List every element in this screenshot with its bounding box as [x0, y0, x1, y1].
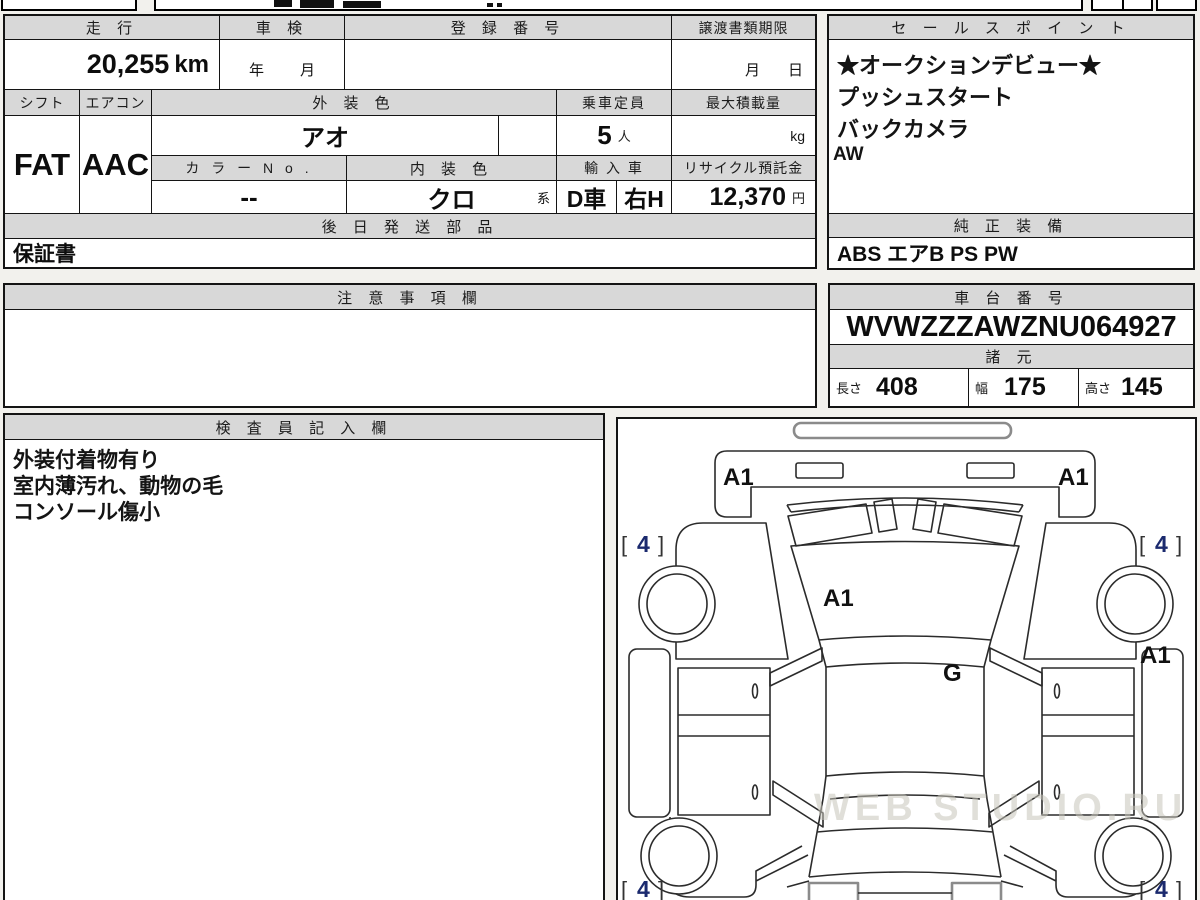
sales-point-item: AW — [833, 144, 864, 166]
shift-value: FAT — [5, 116, 80, 214]
handle-position-value: 右H — [617, 181, 672, 214]
color-no-header: カ ラ ー N o . — [152, 156, 347, 181]
inspector-box: 検 査 員 記 入 欄 外装付着物有り 室内薄汚れ、動物の毛 コンソール傷小 — [3, 413, 605, 900]
capacity-unit: 人 — [618, 126, 631, 145]
spec-height-label: 高さ — [1085, 378, 1111, 397]
bracket-open: [ — [621, 532, 627, 557]
sales-points-header-label: セ ー ル ス ポ イ ン ト — [891, 17, 1130, 38]
later-parts-header-label: 後 日 発 送 部 品 — [322, 216, 499, 237]
wheels — [639, 566, 1173, 894]
exterior-color-header: 外 装 色 — [152, 90, 557, 116]
handle-position-text: 右H — [624, 181, 664, 214]
cautions-header-label: 注 意 事 項 欄 — [337, 287, 483, 308]
damage-mark-windshield: G — [943, 660, 962, 687]
tire-score-value: 4 — [1155, 876, 1168, 900]
chassis-specs-block: 車 台 番 号 WVWZZZAWZNU064927 諸 元 長さ 408 幅 1… — [828, 283, 1195, 408]
cautions-header: 注 意 事 項 欄 — [5, 285, 815, 310]
damage-mark-rear-right: A1 — [1140, 642, 1171, 669]
sales-point-item: ★オークションデビュー★ — [837, 48, 1101, 80]
transfer-deadline-header: 譲渡書類期限 — [672, 16, 815, 40]
tire-score-value: 4 — [637, 876, 650, 900]
door-handle — [753, 684, 758, 698]
import-header-label: 輸 入 車 — [584, 158, 644, 178]
transfer-month-placeholder: 月 — [745, 59, 760, 80]
shift-value-text: FAT — [14, 147, 70, 183]
color-no-text: -- — [240, 182, 257, 213]
truncated-cell — [154, 0, 1083, 11]
doors-left — [678, 668, 770, 815]
shaken-month-placeholder: 月 — [300, 59, 315, 80]
sales-points-block: セ ー ル ス ポ イ ン ト ★オークションデビュー★ プッシュスタート バッ… — [827, 14, 1195, 270]
chassis-header: 車 台 番 号 — [830, 285, 1193, 310]
transfer-day-placeholder: 日 — [788, 59, 803, 80]
tire-score-rear-left: [ 4 ] — [621, 876, 664, 900]
later-parts-header: 後 日 発 送 部 品 — [5, 214, 815, 239]
equipment-header: 純 正 装 備 — [829, 214, 1193, 238]
capacity-value: 5人 — [557, 116, 672, 156]
max-load-header: 最大積載量 — [672, 90, 815, 116]
chassis-header-label: 車 台 番 号 — [954, 287, 1069, 308]
damage-mark-hood: A1 — [823, 585, 854, 612]
mileage-header-label: 走 行 — [86, 17, 138, 38]
wheel-front-left — [639, 566, 715, 642]
vehicle-info-table: 走 行 車 検 登 録 番 号 譲渡書類期限 20,255km 年 月 月 日 … — [3, 14, 817, 269]
truncated-cell — [1, 0, 137, 11]
capacity-header-label: 乗車定員 — [582, 93, 646, 113]
bracket-close: ] — [658, 877, 664, 900]
import-type-value: D車 — [557, 181, 617, 214]
interior-color-value: クロ 系 — [347, 181, 557, 214]
bracket-open: [ — [621, 877, 627, 900]
inspector-header: 検 査 員 記 入 欄 — [5, 415, 603, 440]
spec-width-value: 175 — [1004, 373, 1046, 402]
equipment-text: ABS エアB PS PW — [837, 238, 1018, 268]
grille-right — [913, 499, 936, 532]
bracket-close: ] — [658, 532, 664, 557]
aircon-header: エアコン — [80, 90, 152, 116]
spec-length-value: 408 — [876, 373, 918, 402]
door-handle — [1055, 684, 1060, 698]
shaken-value: 年 月 — [220, 40, 345, 90]
later-parts-text: 保証書 — [13, 239, 76, 267]
later-parts-value: 保証書 — [5, 239, 815, 267]
capacity-header: 乗車定員 — [557, 90, 672, 116]
recycle-header-label: リサイクル預託金 — [684, 158, 803, 178]
door-molding-lines — [678, 715, 1134, 736]
grille-left — [874, 499, 897, 532]
spec-width: 幅 175 — [969, 369, 1079, 406]
interior-color-suffix: 系 — [537, 188, 550, 207]
door-handle — [753, 785, 758, 799]
spec-height: 高さ 145 — [1079, 369, 1193, 406]
mileage-header: 走 行 — [5, 16, 220, 40]
import-header: 輸 入 車 — [557, 156, 672, 181]
import-type-text: D車 — [567, 181, 607, 214]
transfer-header-label: 譲渡書類期限 — [699, 18, 789, 38]
recycle-header: リサイクル預託金 — [672, 156, 815, 181]
damage-mark-bumper-left: A1 — [723, 464, 754, 491]
tire-score-front-right: [ 4 ] — [1139, 531, 1182, 557]
registration-value — [345, 40, 672, 90]
inspector-comment: コンソール傷小 — [13, 496, 160, 526]
shift-header-label: シフト — [20, 93, 65, 113]
mileage-value: 20,255km — [5, 40, 220, 90]
color-no-value: -- — [152, 181, 347, 214]
specs-header-label: 諸 元 — [985, 346, 1037, 367]
vehicle-diagram-box: A1 A1 A1 G A1 [ 4 ] [ 4 ] [ 4 ] [ 4 ] WE… — [616, 417, 1197, 900]
shaken-year-placeholder: 年 — [249, 59, 264, 80]
rear-bumper-left — [809, 883, 858, 900]
tire-score-front-left: [ 4 ] — [621, 531, 664, 557]
sales-points-header: セ ー ル ス ポ イ ン ト — [829, 16, 1193, 40]
cautions-body — [5, 310, 815, 406]
sales-point-item: プッシュスタート — [837, 80, 1013, 112]
shaken-header-label: 車 検 — [256, 17, 308, 38]
cautions-box: 注 意 事 項 欄 — [3, 283, 817, 408]
equipment-value: ABS エアB PS PW — [829, 238, 1193, 268]
truncated-cell — [1156, 0, 1197, 11]
interior-color-header: 内 装 色 — [347, 156, 557, 181]
a-pillar-right — [990, 648, 1042, 686]
front-edge-strip — [794, 423, 1011, 438]
mileage-unit: km — [174, 51, 209, 79]
bracket-open: [ — [1139, 532, 1145, 557]
aircon-header-label: エアコン — [86, 93, 146, 113]
a-pillar-left — [770, 648, 822, 686]
wheel-front-right — [1097, 566, 1173, 642]
headlight-washer-right — [967, 463, 1014, 478]
rear-bumper-right — [952, 883, 1001, 900]
shift-header: シフト — [5, 90, 80, 116]
max-load-unit: kg — [790, 128, 805, 144]
aircon-value-text: AAC — [82, 147, 149, 183]
capacity-number: 5 — [597, 120, 611, 151]
headlight-washer-left — [796, 463, 843, 478]
bracket-open: [ — [1139, 877, 1145, 900]
shaken-header: 車 検 — [220, 16, 345, 40]
chassis-value: WVWZZZAWZNU064927 — [830, 310, 1193, 345]
exterior-color-text: アオ — [301, 118, 349, 153]
spec-width-label: 幅 — [975, 378, 988, 397]
tire-score-value: 4 — [1155, 531, 1168, 557]
bracket-close: ] — [1176, 877, 1182, 900]
tire-score-value: 4 — [637, 531, 650, 557]
equipment-header-label: 純 正 装 備 — [954, 215, 1069, 236]
max-load-header-label: 最大積載量 — [706, 93, 781, 113]
recycle-fee-number: 12,370 — [710, 183, 786, 212]
registration-header-label: 登 録 番 号 — [451, 17, 566, 38]
windshield — [819, 640, 991, 667]
interior-color-header-label: 内 装 色 — [410, 158, 493, 179]
specs-header: 諸 元 — [830, 345, 1193, 369]
recycle-fee-value: 12,370円 — [672, 181, 815, 214]
transfer-deadline-value: 月 日 — [672, 40, 815, 90]
interior-color-text: クロ — [428, 181, 476, 214]
bracket-close: ] — [1176, 532, 1182, 557]
inspector-body: 外装付着物有り 室内薄汚れ、動物の毛 コンソール傷小 — [5, 440, 603, 898]
color-no-header-label: カ ラ ー N o . — [185, 158, 312, 178]
watermark: WEB STUDIO.RU — [814, 787, 1187, 830]
spec-height-value: 145 — [1121, 373, 1163, 402]
recycle-fee-unit: 円 — [792, 188, 805, 207]
registration-header: 登 録 番 号 — [345, 16, 672, 40]
wheel-rear-left — [641, 818, 717, 894]
mileage-number: 20,255 — [87, 49, 170, 80]
truncated-cell — [1091, 0, 1153, 11]
exterior-color-value: アオ — [152, 116, 499, 156]
inspector-header-label: 検 査 員 記 入 欄 — [216, 417, 393, 438]
sill-strip-left — [629, 649, 670, 817]
exterior-color-header-label: 外 装 色 — [312, 92, 395, 113]
max-load-value: kg — [672, 116, 815, 156]
aircon-value: AAC — [80, 116, 152, 214]
sales-point-item: バックカメラ — [837, 112, 969, 144]
spec-length: 長さ 408 — [830, 369, 969, 406]
spec-length-label: 長さ — [836, 378, 862, 397]
damage-mark-bumper-right: A1 — [1058, 464, 1089, 491]
front-bumper — [715, 451, 1095, 517]
paint-code-subcell — [499, 116, 557, 156]
chassis-number-text: WVWZZZAWZNU064927 — [846, 311, 1176, 344]
sales-points-body: ★オークションデビュー★ プッシュスタート バックカメラ AW — [829, 40, 1193, 214]
